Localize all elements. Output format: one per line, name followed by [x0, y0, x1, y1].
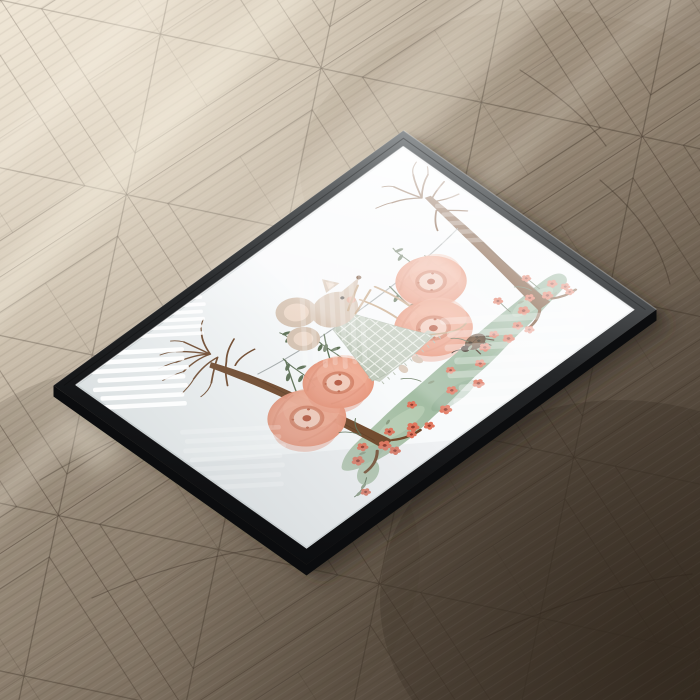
- scene-canvas: [0, 0, 700, 700]
- scene-photo: [0, 0, 700, 700]
